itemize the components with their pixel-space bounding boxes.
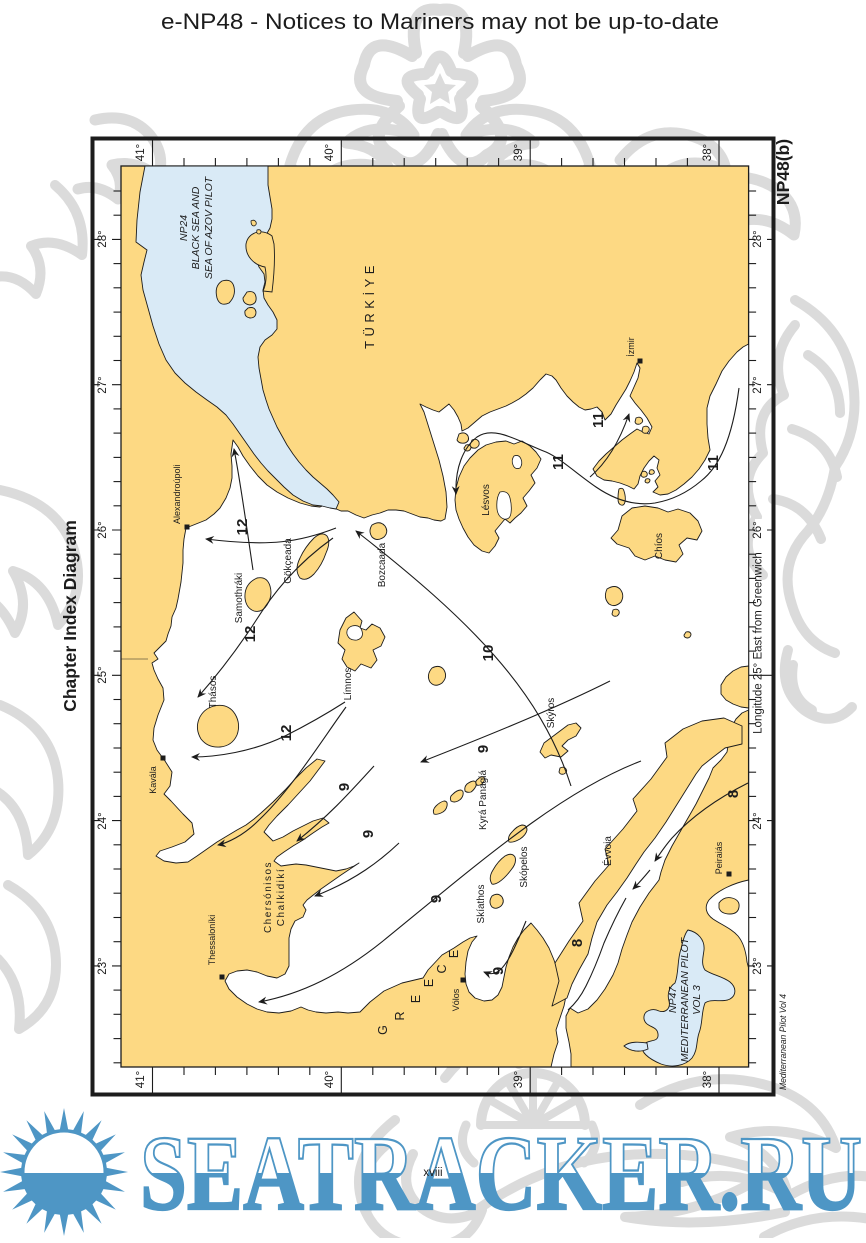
svg-text:9: 9: [336, 783, 353, 791]
svg-text:TÜRKİYE: TÜRKİYE: [362, 261, 377, 349]
svg-text:24°: 24°: [752, 812, 764, 829]
svg-text:E: E: [409, 995, 423, 1003]
svg-text:Lésvos: Lésvos: [481, 484, 492, 516]
svg-text:Chíos: Chíos: [654, 533, 665, 559]
svg-text:Chapter Index Diagram: Chapter Index Diagram: [60, 520, 80, 712]
svg-text:Chersónisos: Chersónisos: [263, 861, 274, 933]
svg-text:Límnos: Límnos: [343, 668, 354, 701]
svg-text:Thessaloníki: Thessaloníki: [207, 915, 217, 966]
svg-text:23°: 23°: [97, 957, 109, 974]
svg-text:Peiraiás: Peiraiás: [714, 841, 724, 874]
svg-text:26°: 26°: [752, 521, 764, 538]
svg-text:38°: 38°: [702, 1071, 714, 1088]
svg-text:11: 11: [590, 412, 607, 428]
svg-text:Alexandroúpoli: Alexandroúpoli: [172, 464, 182, 524]
svg-text:8: 8: [569, 939, 586, 947]
svg-text:40°: 40°: [324, 1071, 336, 1088]
svg-text:NP48(b): NP48(b): [773, 139, 793, 205]
svg-text:Thásos: Thásos: [208, 676, 219, 709]
svg-text:11: 11: [550, 454, 567, 470]
svg-text:27°: 27°: [752, 376, 764, 393]
svg-text:27°: 27°: [97, 376, 109, 393]
svg-text:Vólos: Vólos: [451, 988, 461, 1011]
svg-text:R: R: [393, 1011, 407, 1020]
svg-text:NP47: NP47: [667, 986, 679, 1013]
svg-text:G: G: [376, 1025, 390, 1035]
svg-text:41°: 41°: [135, 144, 147, 161]
svg-text:25°: 25°: [97, 666, 109, 683]
svg-text:9: 9: [475, 745, 492, 753]
svg-text:41°: 41°: [135, 1071, 147, 1088]
svg-text:İzmir: İzmir: [626, 337, 636, 357]
svg-text:E: E: [422, 979, 436, 987]
svg-text:SEATRACKER.RU: SEATRACKER.RU: [140, 1115, 862, 1233]
svg-text:8: 8: [725, 790, 742, 798]
svg-text:40°: 40°: [324, 144, 336, 161]
svg-text:Skópelos: Skópelos: [519, 846, 530, 887]
svg-text:12: 12: [234, 519, 251, 536]
svg-text:26°: 26°: [97, 521, 109, 538]
svg-text:e-NP48 - Notices to Mariners m: e-NP48 - Notices to Mariners may not be …: [161, 9, 719, 34]
svg-text:xviii: xviii: [423, 1167, 442, 1179]
svg-text:Skíathos: Skíathos: [476, 885, 487, 924]
svg-text:9: 9: [360, 830, 377, 838]
svg-text:Kyrá Panagiá: Kyrá Panagiá: [478, 770, 489, 830]
svg-text:NP24: NP24: [178, 215, 190, 241]
svg-text:24°: 24°: [97, 812, 109, 829]
svg-text:Mediterranean Pilot Vol 4: Mediterranean Pilot Vol 4: [778, 994, 789, 1090]
svg-text:Skýros: Skýros: [546, 698, 557, 729]
svg-text:12: 12: [278, 725, 295, 742]
svg-text:9: 9: [490, 967, 507, 975]
svg-text:BLACK SEA AND: BLACK SEA AND: [190, 186, 202, 269]
svg-text:VOL 3: VOL 3: [691, 985, 703, 1015]
svg-text:SEA OF AZOV PILOT: SEA OF AZOV PILOT: [203, 175, 215, 279]
svg-text:38°: 38°: [702, 144, 714, 161]
svg-text:9: 9: [428, 895, 445, 903]
svg-text:MEDITERRANEAN PILOT: MEDITERRANEAN PILOT: [679, 936, 691, 1062]
svg-text:10: 10: [480, 645, 497, 662]
svg-text:23°: 23°: [752, 957, 764, 974]
svg-text:Kavála: Kavála: [148, 766, 158, 794]
svg-text:E: E: [447, 950, 461, 958]
svg-text:39°: 39°: [513, 144, 525, 161]
svg-text:Longitude 25° East from Greenw: Longitude 25° East from Greenwich: [753, 552, 765, 734]
svg-text:Chalkidikí: Chalkidikí: [276, 868, 287, 926]
svg-text:Évvoia: Évvoia: [601, 836, 614, 866]
svg-text:Samothráki: Samothráki: [234, 573, 245, 624]
svg-text:11: 11: [705, 455, 722, 471]
svg-text:39°: 39°: [513, 1071, 525, 1088]
svg-text:12: 12: [242, 626, 259, 643]
svg-text:28°: 28°: [752, 230, 764, 247]
svg-text:28°: 28°: [97, 230, 109, 247]
svg-text:C: C: [435, 964, 449, 973]
